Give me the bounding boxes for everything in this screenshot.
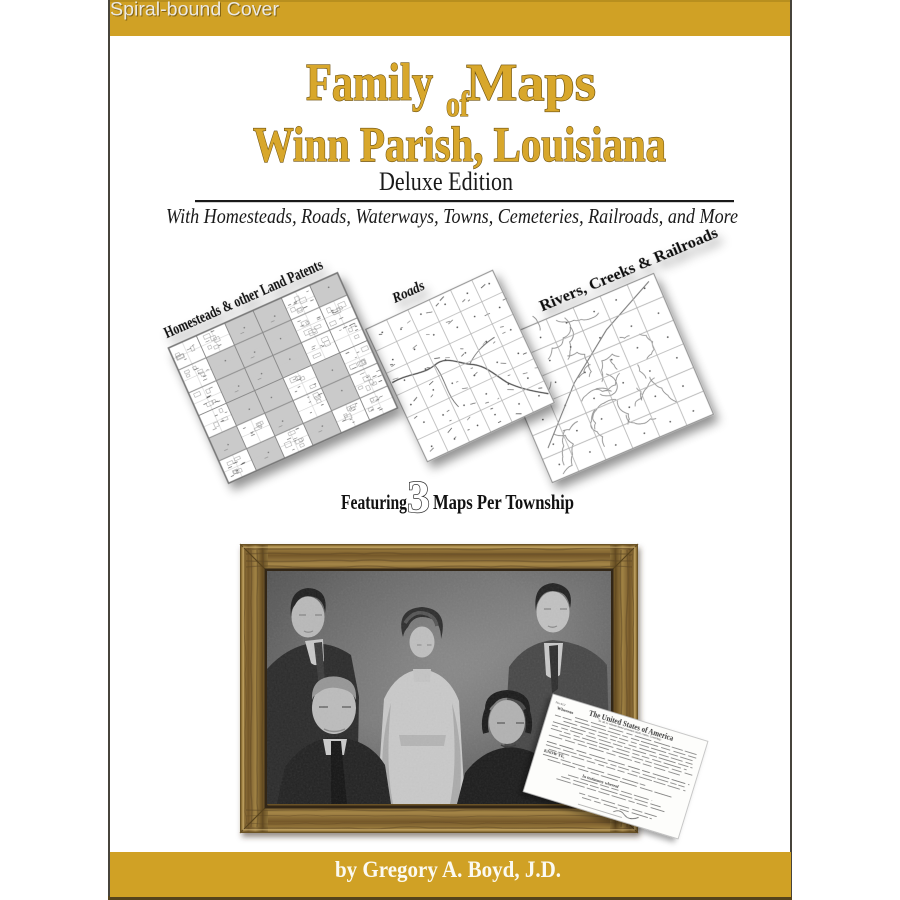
svg-text:With Homesteads, Roads, Waterw: With Homesteads, Roads, Waterways, Towns… (166, 204, 738, 228)
svg-text:Family: Family (306, 54, 433, 112)
svg-text:Deluxe Edition: Deluxe Edition (379, 167, 513, 196)
svg-text:Featuring: Featuring (341, 490, 407, 514)
svg-text:Maps Per Township: Maps Per Township (433, 490, 574, 514)
svg-text:Maps: Maps (466, 54, 596, 112)
svg-text:3: 3 (407, 471, 430, 522)
svg-text:by Gregory A. Boyd, J.D.: by Gregory A. Boyd, J.D. (335, 857, 561, 882)
svg-text:Winn Parish, Louisiana: Winn Parish, Louisiana (253, 116, 666, 172)
svg-text:Spiral-bound Cover: Spiral-bound Cover (110, 0, 280, 21)
